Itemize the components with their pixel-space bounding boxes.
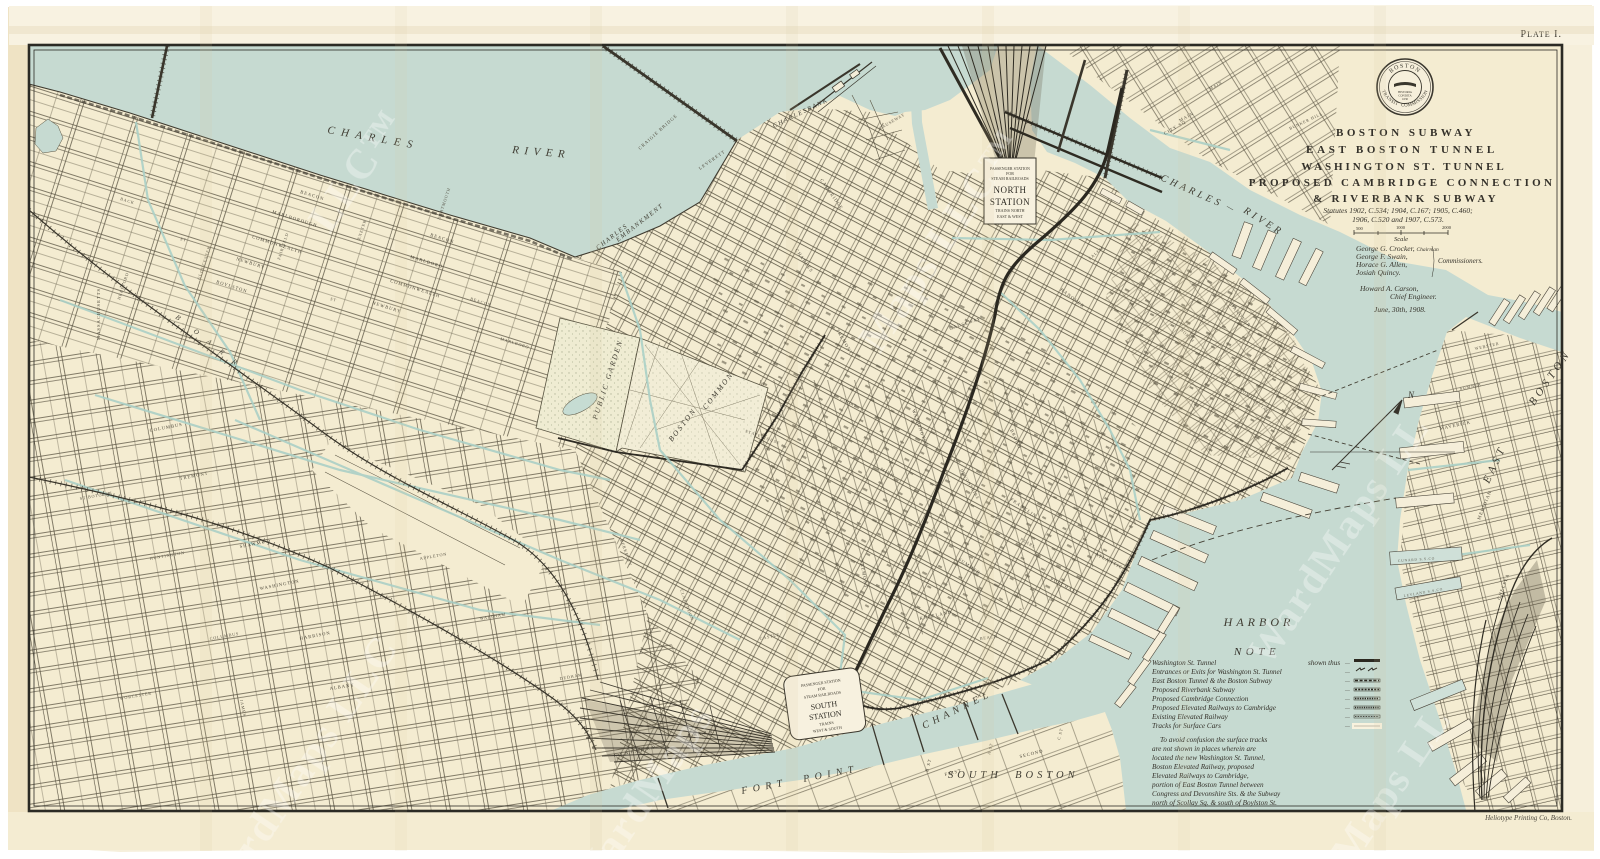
svg-text:Proposed Elevated Railways to: Proposed Elevated Railways to Cambridge [1151, 704, 1277, 712]
svg-text:Statutes 1902, C.534; 1904, C.: Statutes 1902, C.534; 1904, C.167; 1905,… [1323, 206, 1473, 215]
svg-text:Entrances or Exits for Washing: Entrances or Exits for Washington St. Tu… [1151, 668, 1282, 676]
svg-text:Scale: Scale [1394, 236, 1408, 243]
svg-text:located the new Washington St.: located the new Washington St. Tunnel, [1152, 754, 1265, 762]
svg-text:EAST & WEST: EAST & WEST [997, 214, 1023, 219]
svg-text:shown thus: shown thus [1308, 659, 1340, 667]
svg-text:East Boston Tunnel & the Bosto: East Boston Tunnel & the Boston Subway [1151, 677, 1273, 685]
svg-text:—: — [1344, 661, 1350, 667]
svg-text:EAST BOSTON TUNNEL: EAST BOSTON TUNNEL [1306, 144, 1498, 156]
svg-text:Proposed Cambridge Connection: Proposed Cambridge Connection [1151, 695, 1249, 703]
svg-text:Heliotype Printing Co, Boston.: Heliotype Printing Co, Boston. [1484, 814, 1572, 822]
svg-text:BOSTON SUBWAY: BOSTON SUBWAY [1336, 127, 1476, 139]
svg-text:Boston Elevated Railway, propo: Boston Elevated Railway, proposed [1152, 763, 1254, 771]
svg-text:Chief Engineer.: Chief Engineer. [1390, 292, 1437, 301]
svg-text:are not shown in places wherei: are not shown in places wherein are [1152, 745, 1257, 753]
svg-text:WASHINGTON ST. TUNNEL: WASHINGTON ST. TUNNEL [1301, 161, 1506, 173]
svg-text:TRAINS NORTH: TRAINS NORTH [996, 208, 1025, 213]
svg-text:Commissioners.: Commissioners. [1438, 257, 1483, 265]
svg-text:PROPOSED CAMBRIDGE CONNECTION: PROPOSED CAMBRIDGE CONNECTION [1249, 177, 1556, 189]
svg-text:To avoid confusion the surface: To avoid confusion the surface tracks [1160, 736, 1268, 744]
svg-text:Proposed Riverbank Subway: Proposed Riverbank Subway [1151, 686, 1236, 694]
svg-text:1906, C.520 and 1907, C.573.: 1906, C.520 and 1907, C.573. [1352, 215, 1444, 224]
svg-text:—: — [1344, 688, 1350, 694]
svg-text:—: — [1344, 670, 1350, 676]
svg-text:500: 500 [1356, 226, 1364, 231]
svg-text:—: — [1344, 715, 1350, 721]
svg-text:N: N [1407, 390, 1415, 400]
svg-text:—: — [1344, 724, 1350, 730]
svg-text:1630: 1630 [1402, 97, 1409, 101]
svg-text:Elevated Railways to Cambridge: Elevated Railways to Cambridge, [1151, 772, 1249, 780]
svg-text:& RIVERBANK SUBWAY: & RIVERBANK SUBWAY [1313, 193, 1499, 205]
svg-text:Congress and Devonshire Sts. &: Congress and Devonshire Sts. & the Subwa… [1152, 790, 1281, 798]
svg-text:—: — [1344, 706, 1350, 712]
svg-text:—: — [1344, 679, 1350, 685]
svg-text:MASSACHUSETTS: MASSACHUSETTS [96, 288, 101, 340]
svg-text:1000: 1000 [1396, 225, 1406, 230]
svg-text:2000: 2000 [1442, 225, 1452, 230]
svg-text:north of Scollay Sq. & south o: north of Scollay Sq. & south of Boylston… [1152, 799, 1277, 807]
svg-text:SOUTH BOSTON: SOUTH BOSTON [948, 770, 1079, 781]
svg-text:—: — [1344, 697, 1350, 703]
svg-text:portion of East Boston Tunnel: portion of East Boston Tunnel between [1151, 781, 1264, 789]
